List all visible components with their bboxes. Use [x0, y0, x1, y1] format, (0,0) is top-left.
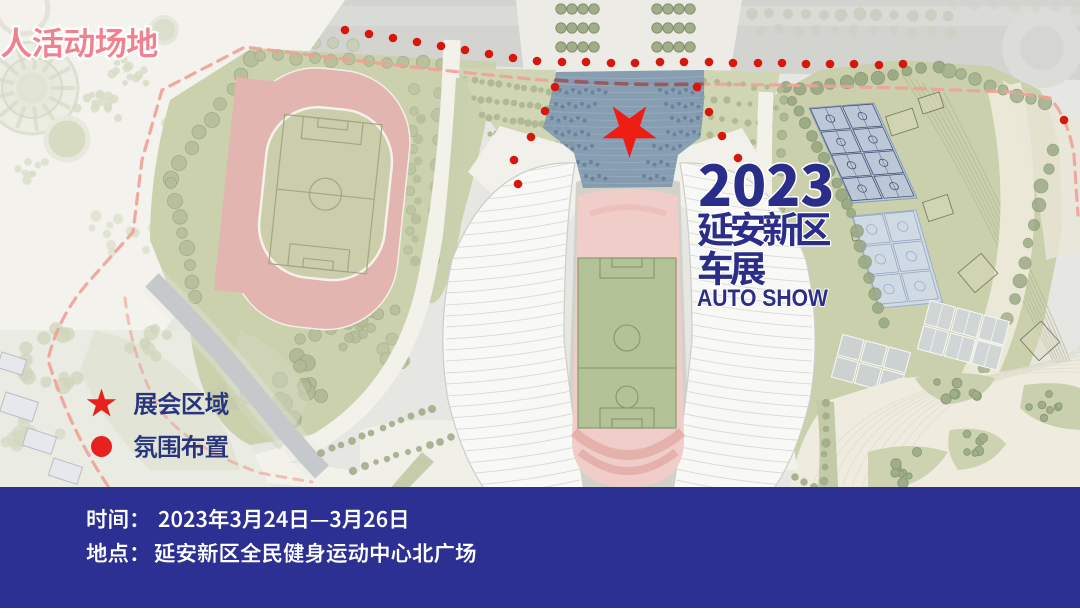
- svg-text:AUTO SHOW: AUTO SHOW: [697, 285, 829, 312]
